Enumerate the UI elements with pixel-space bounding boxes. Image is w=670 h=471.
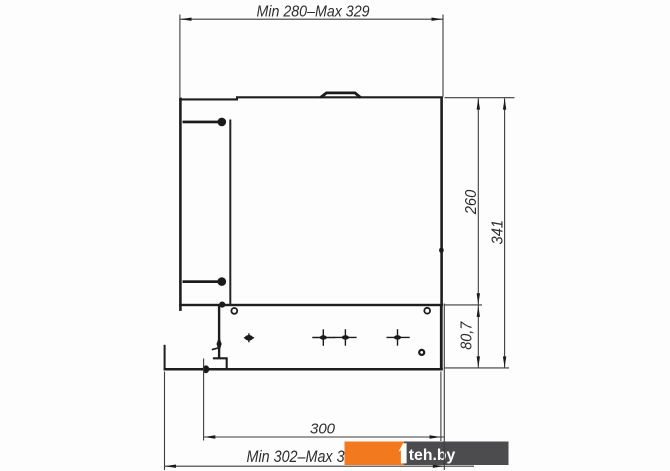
svg-text:341: 341 [489,220,506,245]
svg-text:Min 302–Max 351: Min 302–Max 351 [247,447,361,466]
svg-text:Min 280–Max 329: Min 280–Max 329 [257,3,370,20]
svg-text:300: 300 [310,420,336,437]
svg-text:80,7: 80,7 [459,321,476,350]
svg-text:260: 260 [463,190,480,216]
svg-text:teh.by: teh.by [409,447,456,464]
